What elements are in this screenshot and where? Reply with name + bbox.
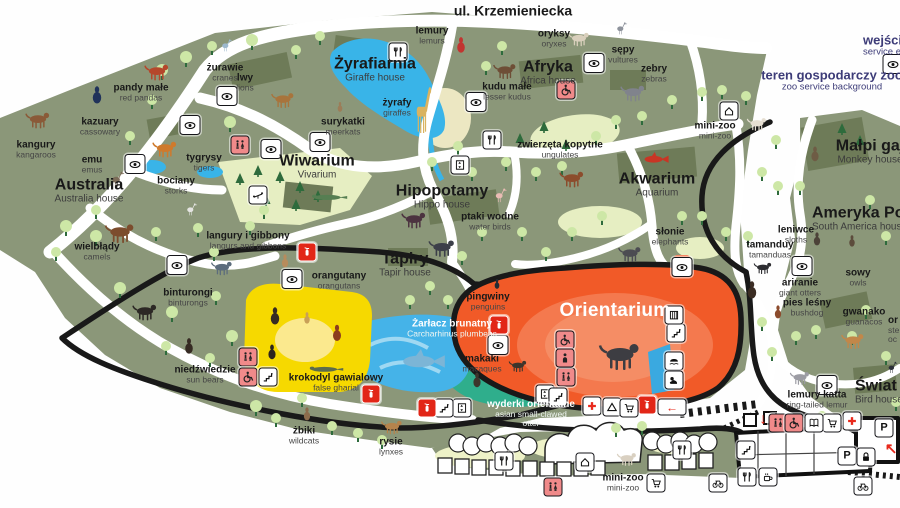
zoo-map: PP←↓↖ ul. Krzemienieckawejście sservice … [0, 0, 900, 508]
entrance-building [736, 412, 898, 477]
map-base [0, 0, 900, 508]
bird-house-building [856, 418, 898, 462]
